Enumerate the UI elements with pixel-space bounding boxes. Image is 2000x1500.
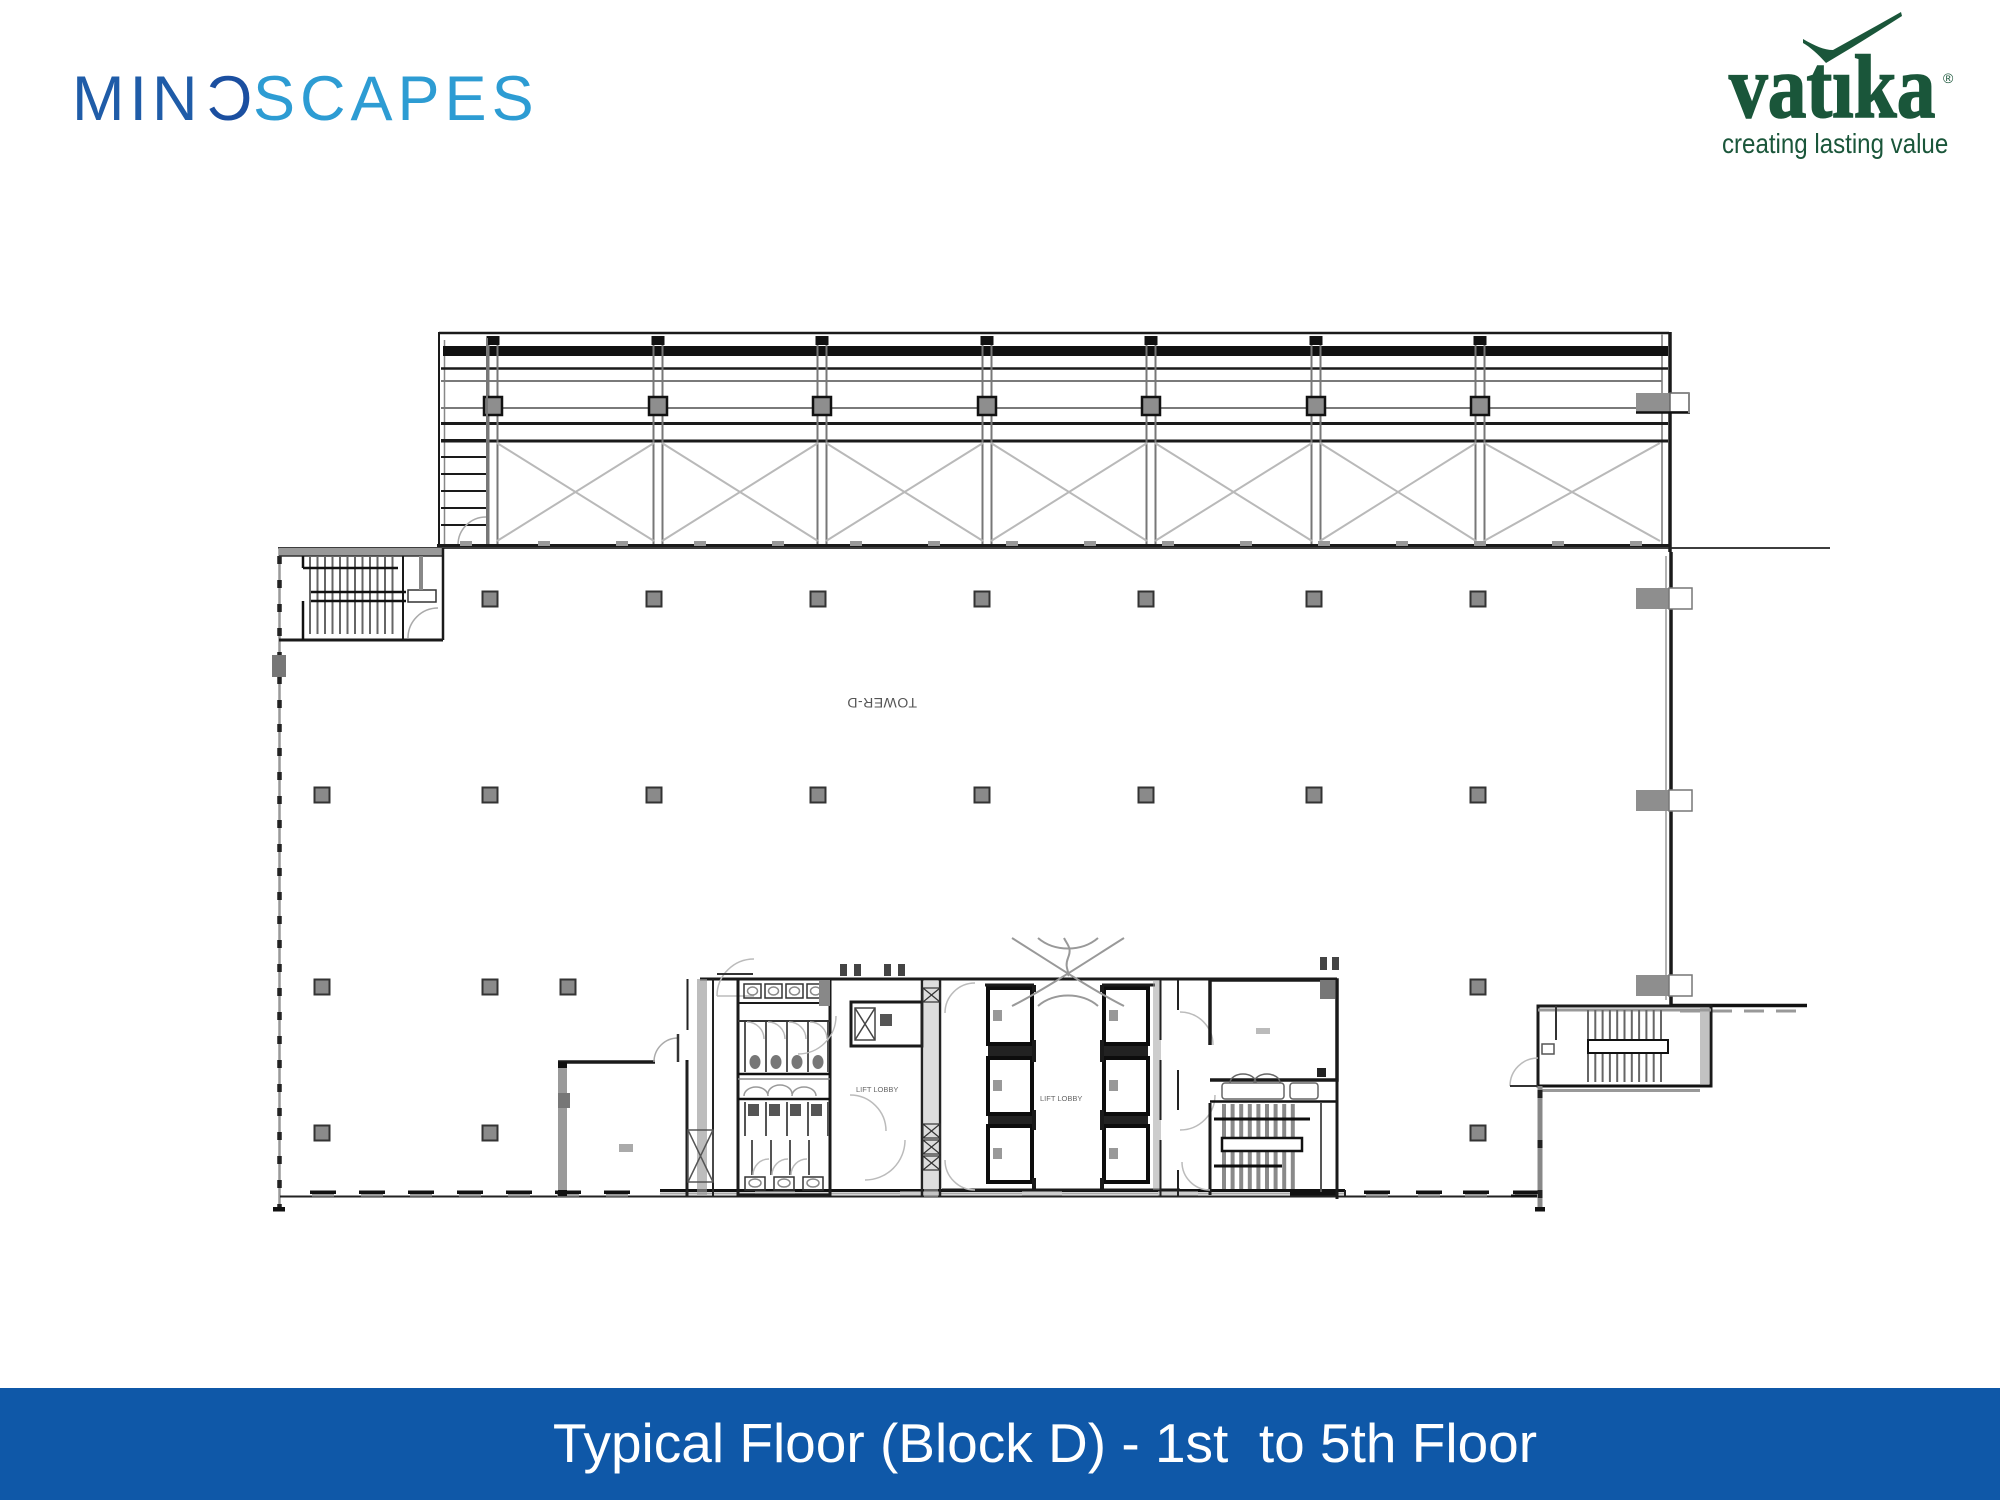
svg-text:TOWER-D: TOWER-D	[847, 695, 917, 711]
svg-text:LIFT LOBBY: LIFT LOBBY	[1040, 1094, 1082, 1103]
svg-text:LIFT LOBBY: LIFT LOBBY	[856, 1085, 898, 1094]
